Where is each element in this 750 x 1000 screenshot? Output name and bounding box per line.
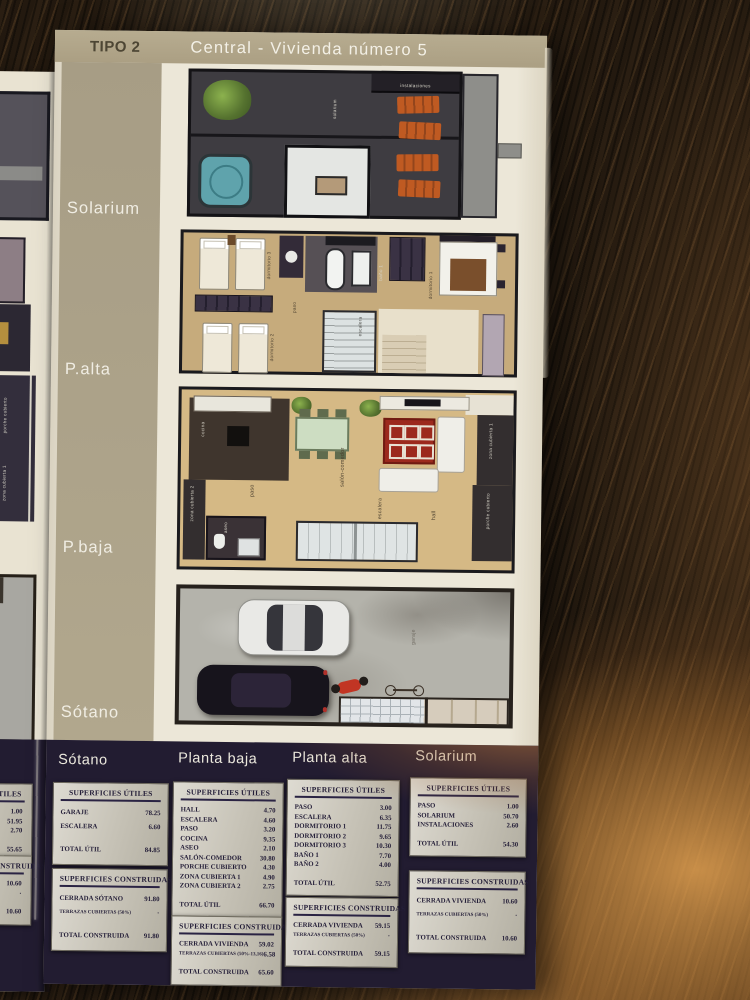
row-label: ESCALERA [294,812,331,822]
planta-baja-construidas-table: SUPERFICIES CONSTRUIDAS CERRADA VIVIENDA… [170,915,282,986]
table-row: 1.00 [0,806,25,817]
left-partial-utiles-table: SUPERFICIES ÚTILES 1.0051.952.70 55.65 [0,782,33,862]
main-page: TIPO 2 Central - Vivienda número 5 Solar… [43,30,547,990]
table-total-row: TOTAL CONSTRUIDA 59.15 [293,949,390,960]
row-label: TOTAL ÚTIL [417,839,458,849]
row-label: TERRAZAS CUBIERTAS (50%) [293,930,365,940]
row-value: 3.00 [380,804,392,814]
rug-motif [404,444,419,459]
master-bed [439,242,498,297]
table-rows: HALL4.70ESCALERA4.60PASO3.20COCINA9.35AS… [180,805,276,892]
table-title: SUPERFICIES ÚTILES [61,788,161,802]
taillight [323,707,327,712]
row-label: HALL [181,805,200,815]
table-row: TERRAZAS CUBIERTAS (50%)· [416,908,517,923]
table-title: SUPERFICIES ÚTILES [0,788,25,802]
instalaciones-room: instalaciones [371,74,459,94]
escalera-label: escalera [378,498,383,519]
stairs [296,521,418,562]
table-row: TERRAZAS CUBIERTAS (50%-13,16)6.58 [179,949,274,960]
row-value: 9.35 [263,835,275,845]
aseo-label: aseo [224,522,229,533]
row-value: 9.65 [379,832,391,842]
row-value: 10.60 [502,895,517,909]
row-label: BAÑO 1 [294,850,319,860]
moto-wheel [359,677,368,686]
stairs-line [475,700,477,724]
table-total-row: TOTAL ÚTIL 66.70 [179,900,274,911]
row-value: 4.00 [379,861,391,871]
row-value: 11.75 [376,823,391,833]
zona-cubierta-1-area: zona cubierta 1 [477,415,514,485]
chair [317,409,328,417]
table-row: TERRAZAS CUBIERTAS (50%)· [59,906,159,921]
bano1-label: baño 1 [379,265,384,281]
side-label-planta-baja: P.baja [63,538,114,558]
row-label: TERRAZAS CUBIERTAS (50%-13,16) [179,949,264,960]
sun-lounger [398,179,441,198]
nightstand [497,280,505,288]
row-label: TOTAL CONSTRUIDA [59,929,129,944]
rug-motif [389,425,404,440]
table-total-row: 10.60 [0,906,23,917]
row-label: CERRADA SÓTANO [59,892,123,907]
row-value: 4.60 [264,816,276,826]
dormitorio2-label: dormitorio 2 [270,333,275,361]
table-row: TERRAZAS CUBIERTAS (50%)· [293,930,390,941]
bike-frame [393,689,417,691]
footer-column-title-sotano: Sótano [58,752,108,769]
cocina-label: cocina [201,422,206,437]
row-value: 4.30 [263,863,275,873]
row-label: TERRAZAS CUBIERTAS (50%) [416,908,488,923]
row-value: 3.20 [263,825,275,835]
row-value: 10.60 [6,879,23,889]
row-value: 6.35 [380,813,392,823]
row-value: 2.10 [263,844,275,854]
sotano-utiles-table: SUPERFICIES ÚTILES GARAJE78.25ESCALERA6.… [52,782,169,866]
row-value: · [388,931,390,941]
terrace-edge [465,395,513,416]
table-row: ZONA CUBIERTA 22.75 [180,881,275,892]
row-label: GARAJE [60,806,88,820]
left-plan-fragment-dark [0,304,31,371]
row-label: PASO [295,803,313,813]
table-rows: 10.60· [0,878,24,898]
table-total-row: TOTAL ÚTIL 54.30 [417,839,518,850]
rug-motif [419,425,434,440]
table-title: SUPERFICIES CONSTRUIDAS [60,874,160,888]
type-label: TIPO 2 [90,38,141,56]
planta-baja-plan: zona cubierta 1 porche cubierto zona cub… [177,386,517,573]
taillight [323,670,327,675]
escalera-alta-label: escalera [358,317,363,337]
surface-tables-footer: Sótano SUPERFICIES ÚTILES GARAJE78.25ESC… [43,740,538,990]
row-label: COCINA [180,834,208,844]
wardrobe [195,295,273,313]
jacuzzi [198,154,253,209]
hall-label: hall [432,510,438,520]
table-title: SUPERFICIES CONSTRUIDAS [179,921,274,935]
black-car-roof [231,673,291,708]
left-fragment-line [28,376,32,522]
instalaciones-room-interior [284,145,371,219]
row-value: 50.70 [503,812,518,822]
garage-stairs [339,696,509,726]
left-fragment-beam [0,166,42,181]
sotano-construidas-table: SUPERFICIES CONSTRUIDAS CERRADA SÓTANO91… [51,868,168,952]
row-label: BAÑO 2 [294,860,319,870]
vanity-unit [279,236,304,278]
bed [235,238,266,290]
planta-alta-utiles-table: SUPERFICIES ÚTILES PASO3.00ESCALERA6.35D… [286,779,400,897]
table-rows: GARAJE78.25ESCALERA6.60 [60,806,160,835]
chair [299,409,310,417]
brochure: porche cubierto zona cubierta 1 SUPERFIC… [0,0,750,1000]
table-total-row: TOTAL CONSTRUIDA 65.60 [179,967,274,978]
row-value: · [515,910,517,924]
table-title: SUPERFICIES ÚTILES [181,787,276,801]
table-row: CERRADA VIVIENDA10.60 [416,894,517,909]
row-value: 65.60 [258,968,273,978]
table-row: GARAJE78.25 [60,806,160,821]
planta-alta-plan: dormitorio 3 dormitorio 2 baño 1 dorm [179,229,519,377]
side-label-solarium: Solarium [67,199,140,219]
row-label: TOTAL CONSTRUIDA [179,967,249,977]
table-total-row: 55.65 [0,844,24,855]
table-row: 10.60 [0,878,24,889]
row-value: 54.30 [503,840,518,850]
row-value: 6.60 [148,821,160,835]
table-row: BAÑO 24.00 [294,860,391,871]
row-label: PASO [180,824,198,834]
rug-motif [419,444,434,459]
table-row: ESCALERA6.60 [60,820,160,835]
table-total-row: TOTAL ÚTIL 52.75 [294,878,391,889]
open-terrace [378,309,479,374]
row-value: 6.58 [263,950,275,960]
row-label: CERRADA VIVIENDA [416,894,486,909]
footer-column-title-planta-baja: Planta baja [178,750,257,767]
table-title: SUPERFICIES CONSTRUIDAS [417,876,518,890]
row-label: INSTALACIONES [417,820,473,830]
bathtub [325,248,346,290]
toilet [214,534,225,549]
table-rows: CERRADA VIVIENDA59.02TERRAZAS CUBIERTAS … [179,939,274,959]
row-label: PASO [418,801,436,811]
row-value: 10.60 [6,907,23,917]
table-title: SUPERFICIES ÚTILES [295,785,392,799]
stairs-tile-grid [341,698,425,723]
table-row: 51.95 [0,816,25,827]
zona2-label: zona cubierta 2 [190,486,195,522]
page-title: Central - Vivienda número 5 [190,38,428,60]
sun-lounger [397,96,439,114]
table-total-row: TOTAL CONSTRUIDA 91.80 [59,929,159,944]
instalaciones-label: instalaciones [400,83,431,88]
white-car [237,599,350,656]
footer-column-title-planta-alta: Planta alta [292,750,367,767]
row-label: TERRAZAS CUBIERTAS (50%) [59,906,131,921]
row-value: 10.60 [502,932,517,946]
sun-lounger [396,154,438,171]
planta-alta-construidas-table: SUPERFICIES CONSTRUIDAS CERRADA VIVIENDA… [285,897,399,968]
row-label: ESCALERA [60,820,97,834]
blanket [450,259,486,291]
left-fragment-zona-label: zona cubierta 1 [2,465,7,501]
left-plan-fragment-garage [0,574,36,743]
side-label-planta-alta: P.alta [65,360,111,380]
left-fragment-porche-label: porche cubierto [3,397,8,433]
bathroom-sink [351,250,371,286]
row-value: 4.90 [263,873,275,883]
paso-label: paso [250,484,256,497]
rug-motif [404,425,419,440]
dormitorio1-label: dormitorio 1 [429,271,434,299]
row-label: TOTAL ÚTIL [179,900,220,910]
row-label: ZONA CUBIERTA 2 [180,881,241,891]
row-value: 2.75 [263,882,275,892]
row-value: 4.70 [264,806,276,816]
side-label-sotano: Sótano [61,703,120,723]
dining-table [295,417,349,452]
table-row: INSTALACIONES2.60 [417,820,518,831]
side-label-band [53,62,161,741]
bed [238,323,269,373]
porche-cubierto-area: porche cubierto [472,485,513,561]
row-label: ASEO [180,843,199,853]
left-plan-fragment-porch: porche cubierto zona cubierta 1 [0,375,36,521]
table-title: SUPERFICIES CONSTRUIDAS [0,860,24,874]
row-value: 1.00 [507,802,519,812]
stairs [322,310,377,373]
sun-lounger [399,121,442,140]
row-value: · [157,907,159,921]
chair [299,451,310,459]
solarium-area-label: solarium [333,99,338,119]
left-plan-fragment-wall [0,237,26,303]
row-value: 2.60 [506,821,518,831]
solarium-construidas-table: SUPERFICIES CONSTRUIDAS CERRADA VIVIENDA… [408,870,526,954]
salon-comedor-label: salón-comedor [341,447,347,487]
row-value: 59.15 [375,922,390,932]
kitchen-counters: cocina [189,397,290,480]
solarium-utiles-table: SUPERFICIES ÚTILES PASO1.00SOLARIUM50.70… [409,777,527,857]
row-value: 84.85 [145,844,160,858]
wardrobe [389,237,426,281]
porche-label: porche cubierto [486,493,491,529]
row-value: 51.95 [7,817,24,827]
zona-cubierta-2-area: zona cubierta 2 [183,479,206,559]
zona1-label: zona cubierta 1 [489,423,494,459]
dormitorio3-label: dormitorio 3 [267,251,272,279]
table-total-row: TOTAL ÚTIL 84.85 [60,843,160,858]
chair [317,451,328,459]
white-car-roof [283,605,306,651]
stairs-line [451,700,453,724]
bath-fixtures [326,236,376,246]
photo-of-floorplan-brochure: porche cubierto zona cubierta 1 SUPERFIC… [0,0,750,1000]
table-rows: PASO3.00ESCALERA6.35DORMITORIO 111.75DOR… [294,803,392,871]
table-rows: PASO1.00SOLARIUM50.70INSTALACIONES2.60 [417,801,518,831]
garaje-label: garaje [412,629,417,645]
row-value: 91.80 [144,893,159,907]
row-value: 59.02 [259,940,274,950]
black-car [197,665,330,717]
aseo-room: aseo [206,516,267,561]
round-sink [285,251,297,263]
concrete-walkway [461,74,499,218]
room-table [315,176,347,195]
row-value: 55.65 [7,845,24,855]
paso-alta-label: paso [293,302,298,313]
table-row: · [0,888,24,899]
row-value: 78.25 [145,807,160,821]
row-label: TOTAL ÚTIL [294,878,335,888]
row-label: TOTAL ÚTIL [60,843,101,858]
left-partial-construidas-table: SUPERFICIES CONSTRUIDAS 10.60· 10.60 [0,854,32,925]
moto-wheel [331,684,340,693]
row-value: 2.70 [10,826,24,836]
table-title: SUPERFICIES CONSTRUIDAS [293,903,390,917]
planta-baja-utiles-table: SUPERFICIES ÚTILES HALL4.70ESCALERA4.60P… [171,781,284,918]
row-label: SOLARIUM [417,811,455,821]
table-row: 2.70 [0,825,24,836]
tv-wall [380,396,470,411]
row-label: TOTAL CONSTRUIDA [293,949,363,959]
footer-column-title-solarium: Solarium [415,748,477,765]
row-label: ESCALERA [180,815,217,825]
row-value: 1.00 [11,807,25,817]
row-value: 30.80 [260,854,275,864]
table-row: CERRADA SÓTANO91.80 [59,892,159,907]
sotano-plan: garaje [175,584,515,728]
row-value: 10.30 [376,842,391,852]
row-value: 52.75 [375,879,390,889]
stairs-rail [425,697,428,725]
table-rows: CERRADA VIVIENDA59.15TERRAZAS CUBIERTAS … [293,921,390,941]
nightstand [228,235,236,245]
bed [199,238,230,290]
solarium-plan: instalaciones solarium [181,65,521,223]
row-value: 59.15 [374,950,389,960]
sofa-bottom [379,468,439,493]
tv [405,399,441,406]
row-value: 66.70 [259,901,274,911]
left-fragment-garage-dark [0,577,3,603]
left-plan-fragment-solarium [0,91,50,221]
table-title: SUPERFICIES ÚTILES [418,783,519,797]
row-label: TOTAL CONSTRUIDA [416,931,486,946]
row-value: · [19,889,23,899]
terrace-strip [482,314,505,376]
table-rows: CERRADA SÓTANO91.80TERRAZAS CUBIERTAS (5… [59,892,159,921]
kitchen-island-top [193,396,271,413]
lower-stairs [382,335,426,374]
left-fragment-gold [0,322,9,344]
bush [203,80,251,121]
table-rows: CERRADA VIVIENDA10.60TERRAZAS CUBIERTAS … [416,894,517,923]
cooktop [227,426,249,446]
row-value: 91.80 [144,930,159,944]
chair [335,409,346,417]
shower-tray [238,538,260,556]
jacuzzi-ring [209,165,243,199]
stairs-line [497,700,499,724]
plant [359,400,381,417]
row-value: 7.70 [379,851,391,861]
table-total-row: TOTAL CONSTRUIDA 10.60 [416,931,517,946]
table-rows: 1.0051.952.70 [0,806,25,836]
sofa-right [437,417,466,473]
nightstand [497,244,505,252]
bicycle [385,683,427,698]
entry-bridge [498,143,522,158]
stairs-divider [354,524,357,560]
red-rug [383,418,436,465]
bed [202,323,233,373]
rug-motif [389,444,404,459]
solarium-deck: instalaciones solarium [187,68,463,219]
